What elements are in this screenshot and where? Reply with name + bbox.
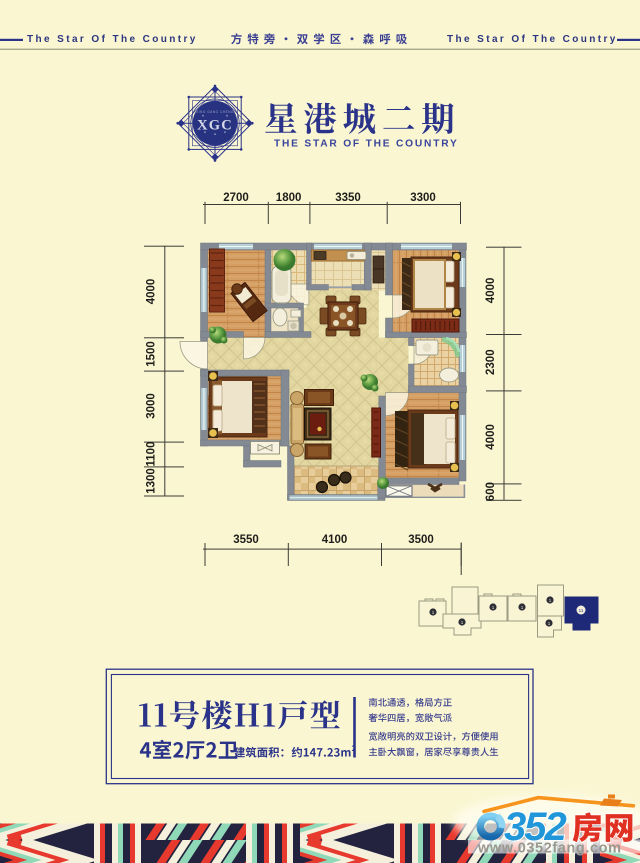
svg-text:XING GANG CHENG: XING GANG CHENG [196, 110, 234, 114]
svg-text:4100: 4100 [322, 534, 348, 546]
svg-text:XGC: XGC [197, 118, 233, 134]
svg-text:1300: 1300 [146, 468, 158, 494]
svg-text:4000: 4000 [485, 424, 497, 450]
svg-text:3550: 3550 [233, 534, 259, 546]
svg-text:1100: 1100 [146, 442, 158, 467]
svg-text:1500: 1500 [146, 341, 158, 367]
svg-text:11: 11 [579, 608, 584, 613]
svg-text:The Star Of The Country: The Star Of The Country [27, 34, 198, 45]
svg-text:600: 600 [485, 482, 497, 501]
svg-text:www.0352fang.com: www.0352fang.com [477, 841, 622, 857]
svg-text:4000: 4000 [485, 278, 497, 304]
svg-text:1800: 1800 [276, 192, 302, 204]
svg-text:4000: 4000 [146, 279, 158, 305]
svg-text:3300: 3300 [410, 192, 436, 204]
svg-text:2700: 2700 [223, 192, 249, 204]
svg-text:3000: 3000 [146, 393, 158, 419]
svg-text:THE STAR OF THE COUNTRY: THE STAR OF THE COUNTRY [274, 139, 459, 150]
svg-text:The Star Of The Country: The Star Of The Country [447, 34, 618, 45]
svg-text:2300: 2300 [485, 349, 497, 375]
svg-text:3350: 3350 [335, 192, 361, 204]
svg-text:3500: 3500 [408, 534, 434, 546]
